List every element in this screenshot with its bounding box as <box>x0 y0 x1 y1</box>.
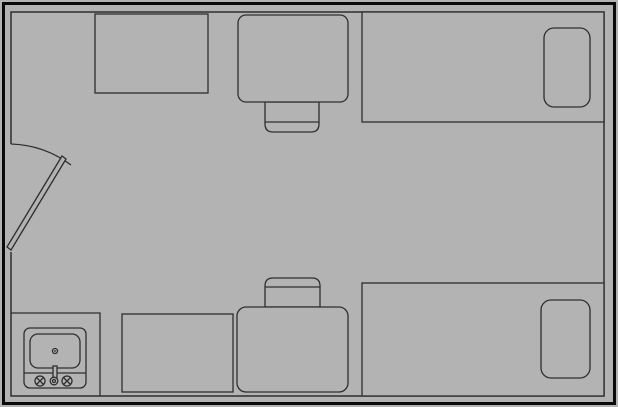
faucet-spout <box>50 377 58 385</box>
pillow-top-right <box>544 28 590 107</box>
chair-top <box>265 102 319 132</box>
sink-drain-dot <box>54 350 56 352</box>
floor-plan-canvas <box>0 0 618 407</box>
desk-top <box>238 15 348 102</box>
pillow-bottom-right <box>541 300 590 378</box>
door-leaf <box>7 156 66 250</box>
faucet-pipe <box>53 366 57 378</box>
floor-plan <box>0 0 618 407</box>
dresser-bottom-left <box>122 314 233 392</box>
dresser-top-left <box>95 14 208 93</box>
desk-bottom <box>237 307 348 392</box>
chair-bottom <box>265 278 320 307</box>
